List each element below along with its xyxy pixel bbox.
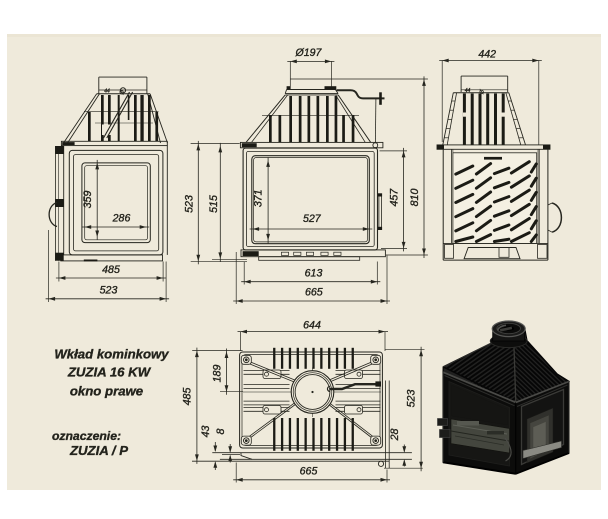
svg-text:523: 523 [184, 195, 196, 213]
svg-text:457: 457 [388, 188, 400, 207]
svg-text:523: 523 [406, 390, 418, 408]
svg-text:Wkład kominkowy: Wkład kominkowy [54, 347, 169, 362]
svg-text:286: 286 [112, 213, 131, 225]
svg-text:8: 8 [215, 428, 227, 434]
svg-text:371: 371 [252, 189, 264, 207]
svg-text:515: 515 [208, 195, 220, 213]
svg-text:43: 43 [200, 426, 212, 438]
svg-text:okno prawe: okno prawe [70, 384, 143, 399]
svg-text:485: 485 [181, 388, 193, 406]
svg-text:665: 665 [305, 287, 323, 299]
svg-text:Ø197: Ø197 [295, 47, 323, 59]
svg-text:ZUZIA / P: ZUZIA / P [69, 443, 128, 458]
svg-text:644: 644 [303, 320, 321, 332]
svg-text:oznaczenie:: oznaczenie: [52, 429, 121, 443]
svg-text:442: 442 [478, 49, 496, 61]
svg-text:189: 189 [211, 365, 223, 383]
svg-text:810: 810 [409, 189, 421, 207]
svg-text:613: 613 [305, 268, 323, 280]
svg-text:527: 527 [303, 213, 322, 225]
svg-text:28: 28 [389, 429, 401, 442]
svg-text:523: 523 [100, 285, 118, 297]
svg-text:ZUZIA 16 KW: ZUZIA 16 KW [67, 365, 152, 380]
svg-text:359: 359 [82, 191, 94, 209]
svg-text:665: 665 [300, 466, 318, 478]
svg-text:485: 485 [102, 264, 120, 276]
